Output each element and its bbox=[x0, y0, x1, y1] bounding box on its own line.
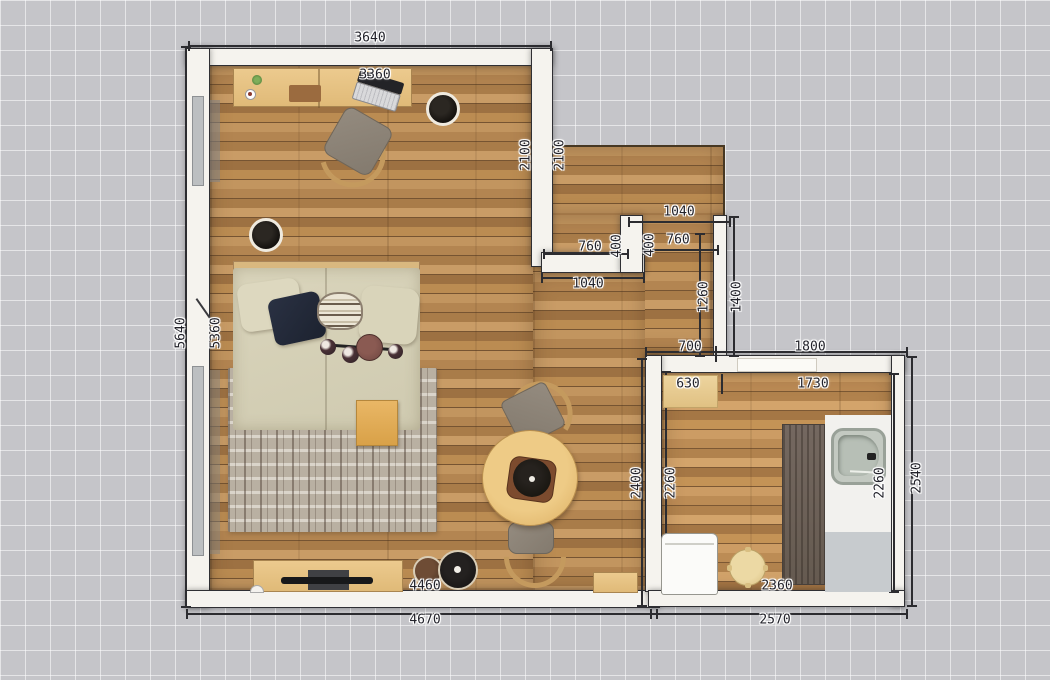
faucet-icon bbox=[867, 453, 876, 460]
potted-plant-black[interactable] bbox=[438, 550, 478, 590]
dimension-line bbox=[628, 221, 731, 223]
side-table[interactable] bbox=[356, 400, 398, 446]
door-leaf-bathroom[interactable] bbox=[737, 358, 817, 372]
floor-extension[interactable] bbox=[533, 145, 725, 215]
dimension-tick bbox=[721, 374, 723, 394]
tv bbox=[281, 577, 373, 584]
bath-runner[interactable] bbox=[782, 424, 825, 585]
stool-foot bbox=[763, 565, 768, 571]
floorplan-canvas: 3640336021002100104076040040076010401260… bbox=[0, 0, 1050, 680]
dining-chair-bottom[interactable] bbox=[498, 522, 562, 558]
dining-table[interactable] bbox=[482, 430, 578, 526]
ceiling-lamp[interactable] bbox=[318, 330, 406, 364]
stool-foot bbox=[745, 547, 751, 552]
dimension-line bbox=[699, 233, 701, 357]
wall-hallway-right[interactable] bbox=[713, 215, 727, 357]
dimension-line bbox=[541, 277, 645, 279]
shower-mat[interactable] bbox=[825, 532, 891, 592]
window-left-upper[interactable] bbox=[192, 96, 204, 186]
stool[interactable] bbox=[729, 549, 766, 586]
lamp-bulb bbox=[388, 344, 403, 359]
dimension-line bbox=[893, 373, 895, 593]
dimension-label-top-outer-width: 3640 bbox=[354, 31, 385, 46]
bowl-dot bbox=[529, 476, 535, 482]
lamp-bulb bbox=[320, 339, 336, 355]
potted-plant[interactable] bbox=[249, 218, 283, 252]
stool-foot bbox=[727, 565, 732, 571]
dimension-line bbox=[733, 216, 735, 357]
window-left-lower[interactable] bbox=[192, 366, 204, 556]
kitchen-sink[interactable] bbox=[831, 428, 886, 485]
dimension-line bbox=[543, 253, 629, 255]
dining-chair-seat bbox=[508, 522, 554, 554]
lamp-shade bbox=[356, 334, 383, 361]
wall-notch-stub[interactable] bbox=[620, 215, 643, 273]
tv-stand[interactable] bbox=[253, 560, 403, 592]
dimension-tick bbox=[715, 346, 717, 362]
curtain-upper bbox=[210, 100, 220, 182]
wall-upper-right[interactable] bbox=[531, 48, 553, 267]
mousepad bbox=[289, 85, 321, 102]
stool-foot bbox=[745, 583, 751, 588]
washing-machine[interactable] bbox=[661, 533, 718, 595]
dimension-line bbox=[188, 45, 552, 47]
dimension-line bbox=[643, 249, 719, 251]
plant-small-icon bbox=[252, 75, 262, 85]
bath-shelf[interactable] bbox=[663, 375, 718, 408]
dimension-line bbox=[645, 351, 908, 353]
dimension-label-hall-outer-length: 1400 bbox=[730, 281, 745, 312]
wall-top[interactable] bbox=[186, 48, 553, 66]
washer-panel-line bbox=[665, 543, 714, 545]
small-shelf[interactable] bbox=[593, 572, 638, 593]
dimension-line bbox=[185, 46, 187, 608]
potted-plant[interactable] bbox=[426, 92, 460, 126]
dimension-line bbox=[186, 613, 658, 615]
media-device bbox=[250, 585, 264, 593]
dimension-line bbox=[641, 358, 643, 607]
curtain-lower bbox=[210, 370, 220, 554]
wall-bathroom-left[interactable] bbox=[645, 355, 662, 592]
woven-basket[interactable] bbox=[317, 292, 363, 330]
plant-center-dot bbox=[454, 566, 461, 573]
dimension-line bbox=[650, 613, 908, 615]
cup-dot bbox=[248, 92, 252, 96]
dimension-line bbox=[911, 356, 913, 607]
